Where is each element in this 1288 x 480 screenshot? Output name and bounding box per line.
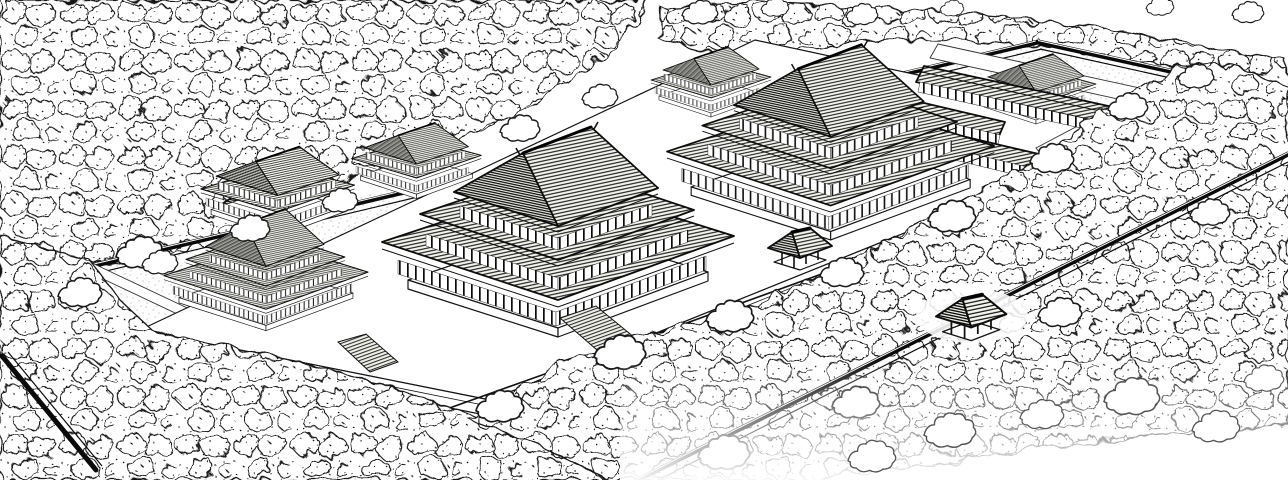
- wall-gate-front: [916, 289, 1028, 343]
- illustration-page: [0, 0, 1288, 480]
- palace-compound-drawing: [0, 0, 1288, 480]
